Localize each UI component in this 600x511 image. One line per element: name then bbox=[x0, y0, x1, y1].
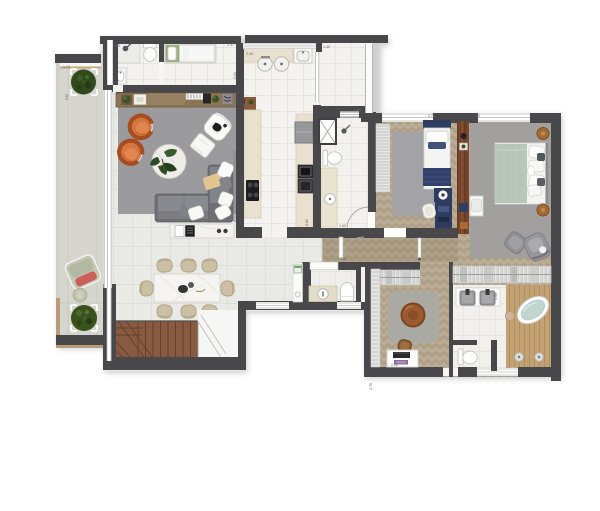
svg-text:3.44: 3.44 bbox=[473, 114, 480, 118]
svg-text:2.78: 2.78 bbox=[428, 114, 435, 118]
svg-text:8.62: 8.62 bbox=[65, 94, 69, 100]
svg-text:1.60: 1.60 bbox=[354, 108, 361, 112]
svg-text:2.60: 2.60 bbox=[391, 363, 398, 367]
svg-text:2.45: 2.45 bbox=[246, 52, 253, 56]
svg-text:2.40: 2.40 bbox=[340, 257, 347, 261]
svg-text:3.61: 3.61 bbox=[233, 72, 237, 79]
svg-text:1.60: 1.60 bbox=[339, 224, 346, 228]
svg-text:2.37: 2.37 bbox=[227, 43, 234, 47]
svg-text:1.29: 1.29 bbox=[63, 65, 70, 69]
svg-text:0.80: 0.80 bbox=[305, 219, 309, 226]
svg-text:1.68: 1.68 bbox=[494, 293, 498, 300]
svg-text:0.60: 0.60 bbox=[113, 44, 120, 48]
svg-text:3.78: 3.78 bbox=[369, 383, 373, 390]
svg-text:1.40: 1.40 bbox=[323, 45, 330, 49]
